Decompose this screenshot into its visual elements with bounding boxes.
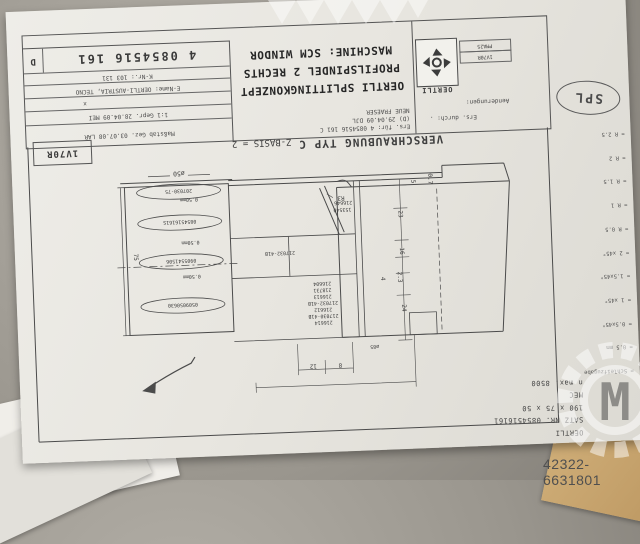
drawing-title: OERTLI SPLITTINGKONZEPT PROFILSPINDEL 2 …: [229, 35, 414, 100]
dim-label: 23: [396, 210, 403, 218]
dim-label: 16: [398, 247, 405, 255]
part-number-label: 217030-41B: [308, 312, 338, 319]
dim-label: 2.3: [396, 272, 403, 283]
technical-drawing: VERSCHRAUBUNG TYP C Z-BASIS = 2 ø50 75 2…: [25, 126, 599, 459]
logo-section: OERTLI PMA25 1V70R Aenderungen: Ers. dur…: [411, 16, 550, 133]
drawing-sheet: D 4 0854516 161 K-Nr.: 103 131 E-Name: O…: [6, 0, 640, 464]
length-dim-line: [117, 188, 130, 336]
part-number-label: 153540: [333, 206, 351, 213]
title-block-data-columns: D 4 0854516 161 K-Nr.: 103 131 E-Name: O…: [23, 40, 234, 149]
spacer-label: 0.50mm: [183, 273, 201, 280]
dim-label: 24: [400, 304, 407, 312]
drawing-caption: VERSCHRAUBUNG TYP C: [298, 132, 443, 151]
brand-name: OERTLI: [417, 84, 457, 96]
changes-label: Aenderungen:: [449, 95, 509, 106]
bottom-dim-lines: [254, 335, 416, 393]
part-number-label: 218731: [313, 286, 331, 293]
field-box-value: PMA25: [478, 42, 493, 49]
rotation-arrow-head: [142, 382, 156, 395]
field-box-value: 1V70R: [478, 53, 493, 60]
assembly-top-bar: [228, 163, 509, 192]
dim-label: 5: [409, 180, 416, 184]
radius-label: R3: [337, 194, 345, 201]
drawn-text: Maßstab Gez. 03.07.08 LAR: [84, 129, 175, 140]
spacer-label: 0.50mm: [180, 196, 198, 203]
stamp-text: SPL: [573, 90, 603, 106]
spacer-label: 0.50mm: [181, 239, 199, 246]
revision-notes: Ers. für: 4 0854516 161 C (D) 29.04.09 D…: [249, 96, 410, 136]
length-label: 75: [132, 254, 139, 262]
part-number-label: 217032-41B: [265, 249, 295, 256]
part-number-label: 0854516161S: [163, 218, 196, 225]
document-number: 4 0854516 161: [76, 48, 196, 67]
diameter-label: ø50: [173, 169, 185, 177]
dim-label: 0.7: [426, 173, 433, 184]
centerline-vertical: [437, 189, 442, 332]
oertli-logo: [415, 38, 459, 88]
revision-letter: D: [30, 56, 36, 66]
arbor-top-edge: [120, 179, 232, 183]
body-inner-lines: [353, 181, 365, 337]
cutter-body-outline: [337, 181, 516, 338]
dim-label: 4: [379, 277, 386, 281]
part-number-label: 207030-75: [165, 187, 192, 194]
part-number-label: 0509050630: [168, 301, 198, 308]
part-number-label: 0905541506: [166, 257, 196, 264]
dim-label: 12: [309, 362, 317, 369]
cutterhead-logo-icon: [420, 46, 453, 79]
part-number-label: 216613: [314, 293, 332, 300]
rotation-arrow-shaft: [149, 357, 196, 387]
part-number-label: 216614: [315, 319, 333, 326]
spl-stamp: SPL: [555, 79, 621, 116]
part-number-label: 216604: [313, 280, 331, 287]
part-number-label: 217032-41B: [308, 299, 338, 306]
radius-leader: [327, 194, 333, 198]
dim-chain-line: [399, 179, 405, 340]
title-block-title-area: OERTLI SPLITTINGKONZEPT PROFILSPINDEL 2 …: [228, 21, 416, 140]
hub-diameter-label: ø85: [370, 343, 379, 349]
photo-of-technical-drawing: D 4 0854516 161 K-Nr.: 103 131 E-Name: O…: [0, 0, 640, 480]
dim-label: 8: [338, 361, 342, 368]
replaced-by-label: Ers. durch: .: [421, 110, 477, 122]
field-box: 1V70R: [459, 50, 511, 64]
listing-id: 42322-6631801: [543, 456, 640, 488]
part-number-label: 216612: [314, 306, 332, 313]
drawing-frame: [28, 127, 559, 442]
keyway-notch: [409, 312, 437, 335]
revision-cell: D: [23, 49, 44, 74]
x-mark: x: [83, 99, 87, 107]
approved-text: 1:1 Gepr. 28.04.09 MEI: [89, 110, 169, 121]
